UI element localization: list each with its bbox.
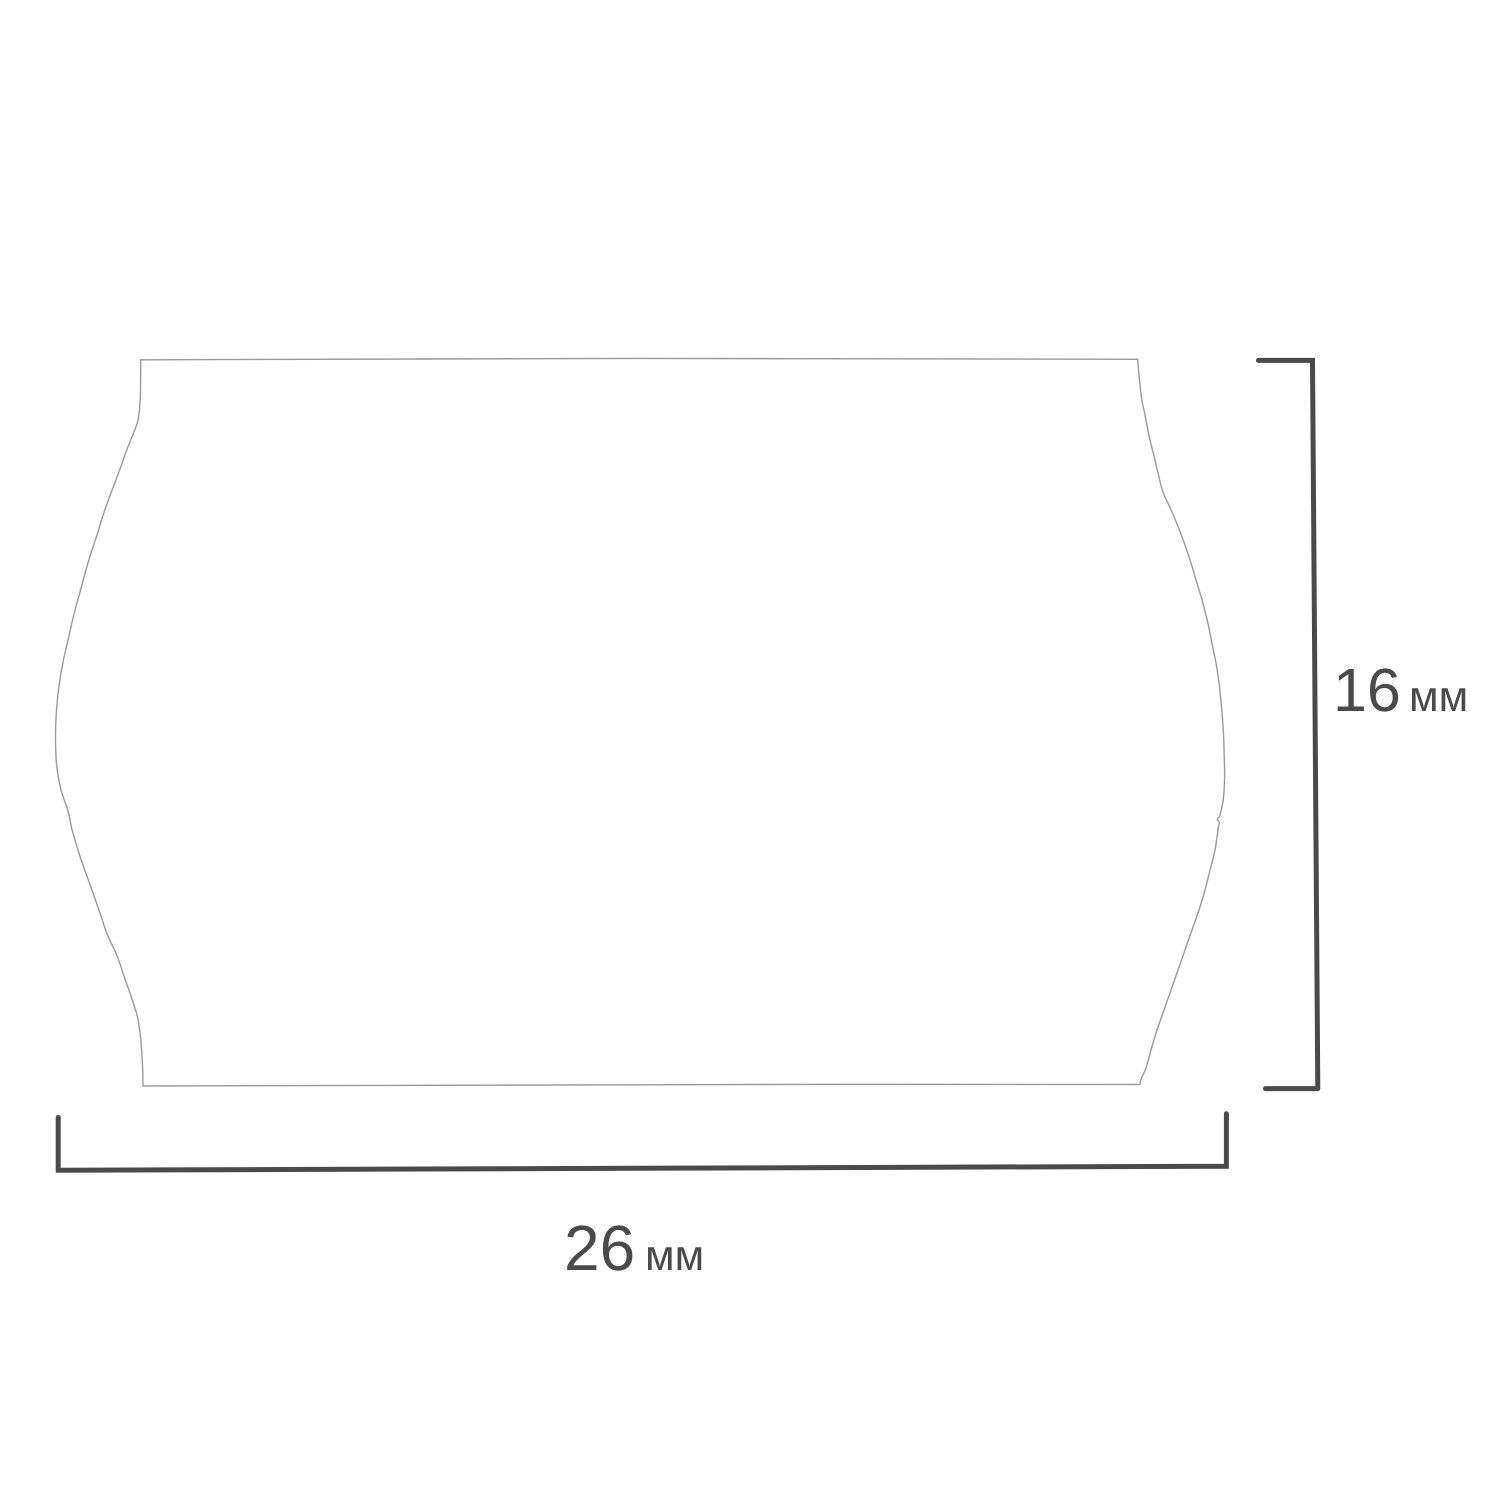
svg-text:мм: мм: [645, 1232, 704, 1280]
svg-text:26: 26: [564, 1212, 635, 1284]
svg-text:16: 16: [1333, 656, 1401, 724]
svg-text:мм: мм: [1409, 673, 1468, 721]
